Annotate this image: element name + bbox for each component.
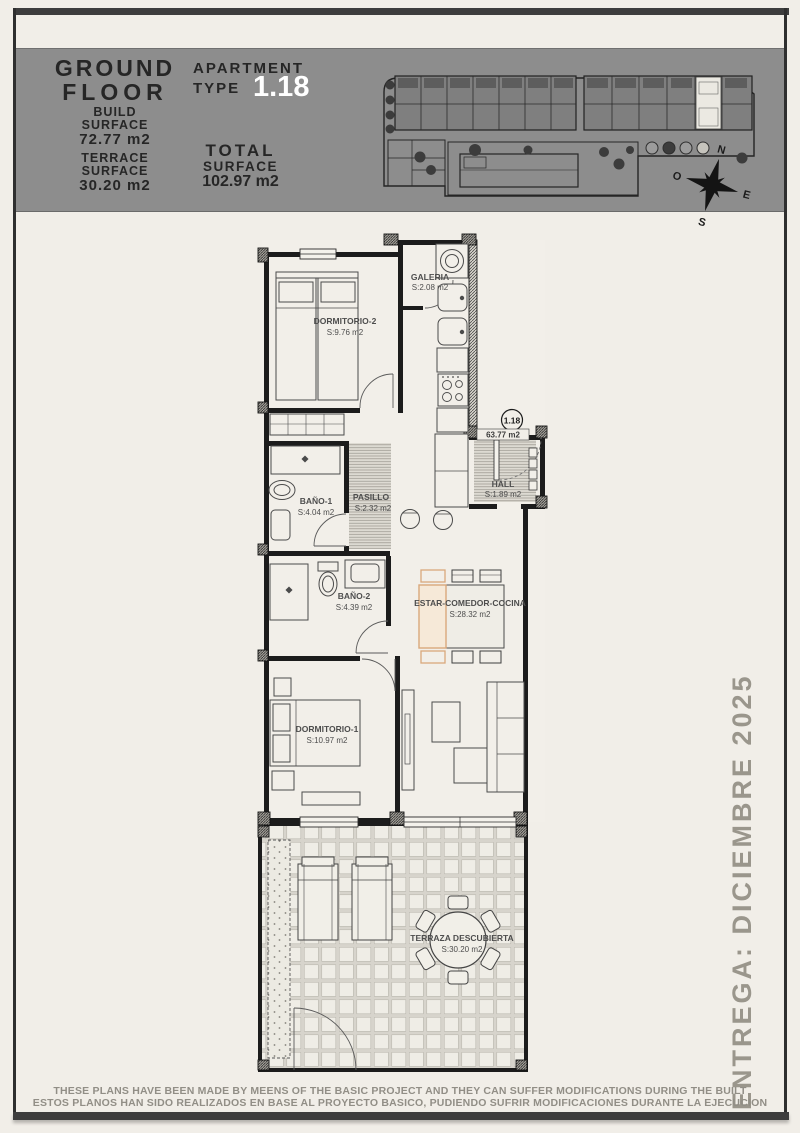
room-label-terraza: TERRAZA DESCUBIERTA	[410, 933, 513, 943]
room-area-galeria: S:2.08 m2	[412, 283, 449, 292]
unit-badge-number: 1.18	[504, 416, 521, 426]
total-surface-label2: SURFACE	[183, 160, 298, 174]
disclaimer-line-en: THESE PLANS HAVE BEEN MADE BY MEENS OF T…	[16, 1085, 784, 1097]
terrace-surface-value: 30.20 m2	[40, 178, 190, 194]
room-area-terraza: S:30.20 m2	[442, 945, 483, 954]
room-area-hall: S:1.89 m2	[485, 490, 522, 499]
kitchen-outer-wall	[469, 240, 477, 436]
site-units	[395, 76, 752, 130]
floor-title-line2: FLOOR	[40, 80, 190, 104]
room-area-bano2: S:4.39 m2	[336, 603, 373, 612]
compass-west-label: O	[671, 170, 683, 184]
frame-top-bar	[13, 8, 789, 15]
build-surface-block: BUILD SURFACE 72.77 m2	[40, 106, 190, 148]
compass-north-label: N	[716, 143, 727, 157]
build-surface-value: 72.77 m2	[40, 132, 190, 148]
room-area-dorm1: S:10.97 m2	[307, 736, 348, 745]
room-label-estar: ESTAR-COMEDOR-COCINA	[414, 598, 526, 608]
room-area-bano1: S:4.04 m2	[298, 508, 335, 517]
room-area-estar: S:28.32 m2	[450, 610, 491, 619]
room-label-hall: HALL	[492, 479, 515, 489]
room-label-dorm1: DORMITORIO-1	[296, 724, 359, 734]
plan-sheet: GROUND FLOOR BUILD SURFACE 72.77 m2 TERR…	[0, 0, 800, 1133]
room-label-bano2: BAÑO-2	[338, 591, 371, 601]
room-area-pasillo: S:2.32 m2	[355, 504, 392, 513]
floor-title-line1: GROUND	[40, 56, 190, 80]
compass-south-label: S	[697, 216, 707, 229]
frame-right-bar	[784, 8, 787, 1120]
apartment-number: 1.18	[253, 71, 333, 104]
compass-east-label: E	[741, 189, 751, 202]
site-highlighted-unit	[696, 77, 721, 129]
room-label-bano1: BAÑO-1	[300, 496, 333, 506]
compass-rose: N E S O	[661, 134, 761, 230]
terrace-planter	[268, 840, 290, 1058]
room-area-dorm2: S:9.76 m2	[327, 328, 364, 337]
room-label-pasillo: PASILLO	[353, 492, 390, 502]
frame-bottom-bar	[13, 1112, 789, 1120]
site-plan: N E S O	[368, 58, 768, 230]
floor-plan: 1.18 63.77 m2 DORMITORIO-2 S:9.76 m2 GAL…	[250, 228, 560, 1088]
total-surface-label1: TOTAL	[183, 142, 298, 160]
terrace-surface-block: TERRACE SURFACE 30.20 m2	[40, 152, 190, 194]
disclaimer-line-es: ESTOS PLANOS HAN SIDO REALIZADOS EN BASE…	[16, 1097, 784, 1109]
unit-badge-area: 63.77 m2	[486, 431, 520, 440]
room-label-galeria: GALERIA	[411, 272, 449, 282]
total-surface-block: TOTAL SURFACE 102.97 m2	[183, 142, 298, 191]
total-surface-value: 102.97 m2	[183, 174, 298, 191]
room-label-dorm2: DORMITORIO-2	[314, 316, 377, 326]
footer-disclaimer: THESE PLANS HAVE BEEN MADE BY MEENS OF T…	[16, 1085, 784, 1110]
delivery-note: ENTREGA: DICIEMBRE 2025	[727, 680, 757, 1110]
